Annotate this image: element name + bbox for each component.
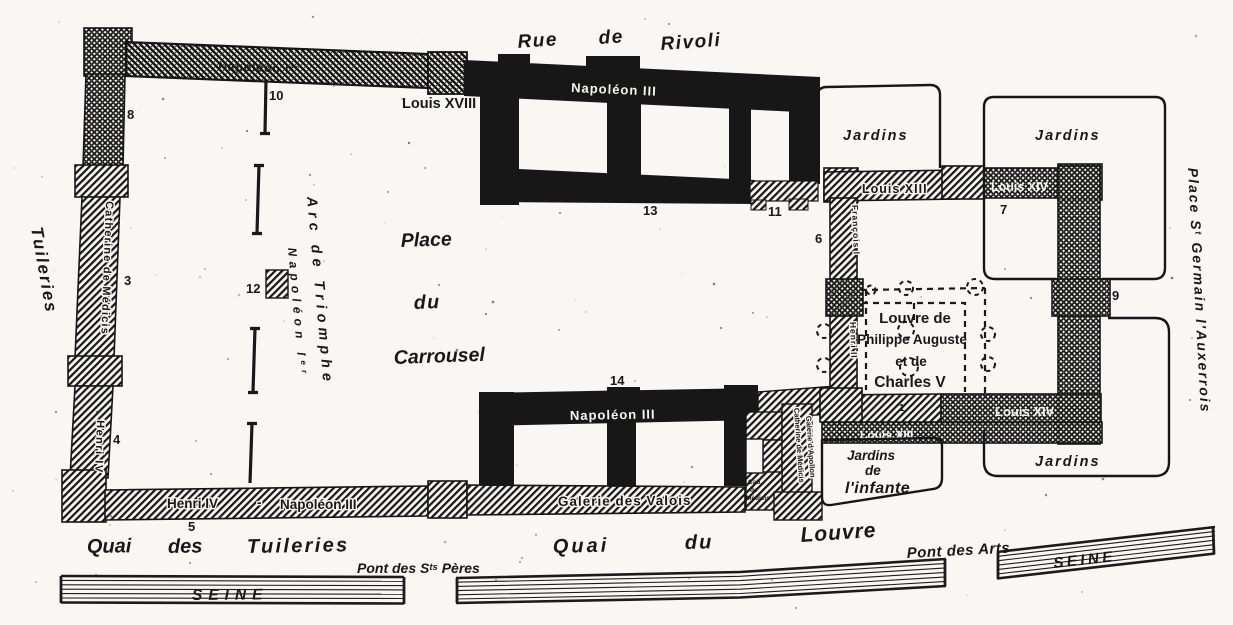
svg-text:11: 11 xyxy=(768,204,782,219)
svg-text:5: 5 xyxy=(188,519,195,534)
svg-text:Louis XIV: Louis XIV xyxy=(995,404,1055,419)
svg-text:Jardins: Jardins xyxy=(847,448,896,463)
svg-text:Louvre de: Louvre de xyxy=(879,310,951,327)
svg-text:des: des xyxy=(168,535,203,558)
svg-text:Jardins: Jardins xyxy=(1035,454,1101,470)
svg-text:3: 3 xyxy=(124,273,131,288)
svg-text:Jardins: Jardins xyxy=(1035,128,1101,144)
svg-text:Quai: Quai xyxy=(87,535,132,558)
svg-text:l'infante: l'infante xyxy=(845,480,910,497)
svg-text:1: 1 xyxy=(899,403,905,414)
svg-text:et de: et de xyxy=(895,354,927,369)
svg-text:Carrousel: Carrousel xyxy=(393,344,485,369)
svg-text:Quai: Quai xyxy=(553,535,610,558)
svg-text:de: de xyxy=(598,26,625,49)
svg-text:Napoléon III: Napoléon III xyxy=(280,497,357,512)
svg-text:Galerie des Valois: Galerie des Valois xyxy=(558,493,692,509)
svg-text:Place: Place xyxy=(400,228,452,252)
svg-text:Rivoli: Rivoli xyxy=(660,30,722,55)
svg-text:12: 12 xyxy=(246,281,260,296)
svg-text:Médicis: Médicis xyxy=(746,495,770,502)
svg-text:Napoléon III: Napoléon III xyxy=(570,407,656,423)
svg-text:du: du xyxy=(685,531,714,554)
svg-text:Pont des Sts Pères: Pont des Sts Pères xyxy=(357,560,480,576)
svg-text:4: 4 xyxy=(113,432,121,447)
svg-text:9: 9 xyxy=(1112,288,1119,303)
svg-text:Henri IV: Henri IV xyxy=(92,420,106,474)
svg-text:Philippe Auguste: Philippe Auguste xyxy=(857,332,967,347)
svg-text:François I: François I xyxy=(850,205,862,255)
svg-text:Louis XVIII: Louis XVIII xyxy=(402,96,476,112)
svg-text:Tuileries: Tuileries xyxy=(247,534,350,558)
svg-text:13: 13 xyxy=(643,203,657,218)
svg-text:de: de xyxy=(750,487,758,494)
svg-text:Cab.: Cab. xyxy=(748,479,762,486)
svg-text:Louis XIII: Louis XIII xyxy=(862,182,928,196)
svg-text:SEINE: SEINE xyxy=(192,586,269,604)
svg-text:Jardins: Jardins xyxy=(843,128,909,144)
svg-text:-: - xyxy=(257,495,262,510)
svg-text:du: du xyxy=(413,291,441,314)
svg-text:8: 8 xyxy=(127,107,134,122)
svg-text:6: 6 xyxy=(815,231,822,246)
svg-text:Henri IV: Henri IV xyxy=(167,496,218,511)
svg-text:Louis XIV: Louis XIV xyxy=(991,180,1049,194)
svg-text:Rue: Rue xyxy=(517,29,559,53)
svg-text:14: 14 xyxy=(610,373,625,388)
svg-text:7: 7 xyxy=(1000,202,1007,217)
svg-text:Charles V: Charles V xyxy=(874,374,946,391)
svg-text:10: 10 xyxy=(269,88,283,103)
svg-text:de: de xyxy=(865,463,881,478)
